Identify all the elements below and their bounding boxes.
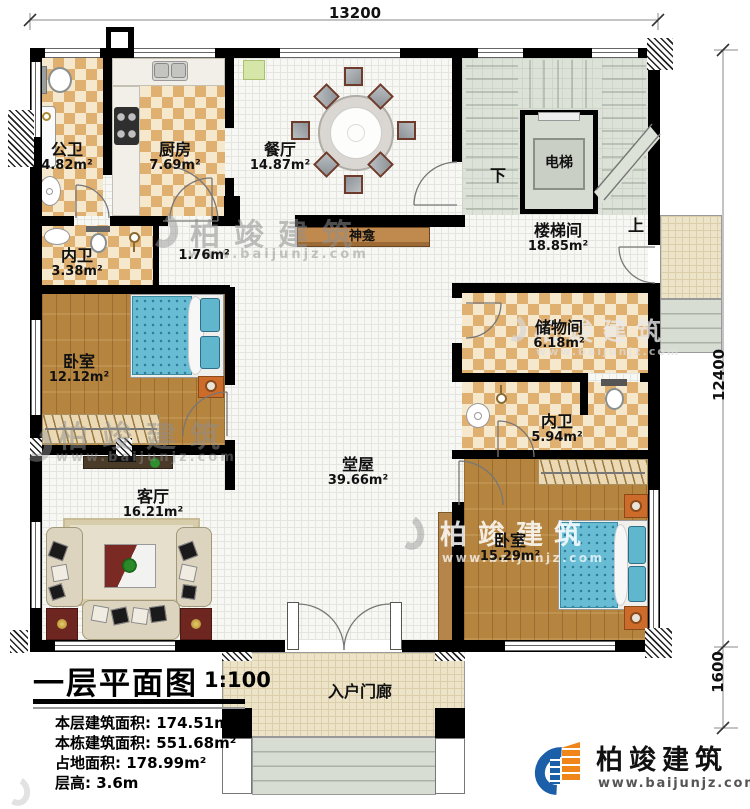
nightstand-2a-lamp xyxy=(630,500,642,512)
room-label-main-hall: 堂屋 39.66m² xyxy=(318,456,398,488)
stair-up-label: 上 xyxy=(628,212,644,236)
end-table-right-medallion xyxy=(191,619,201,629)
room-label-inner-bath-2: 内卫 5.94m² xyxy=(517,413,597,445)
toilet-bowl xyxy=(48,67,72,93)
watermark-swirl-5 xyxy=(1,773,34,809)
hatch-bottom-right xyxy=(645,628,672,658)
stat-value: 174.51m² xyxy=(156,714,236,732)
brand-logo: 柏竣建筑 www.baijunjz.com xyxy=(536,738,741,802)
window-right-bedroom xyxy=(649,490,659,630)
window-bottom-living xyxy=(55,641,175,651)
hatch-top-right xyxy=(647,38,673,70)
room-label-entry-porch: 入户门廊 xyxy=(300,683,420,701)
wall-toilet-partition xyxy=(580,373,588,415)
window-left-living xyxy=(31,522,41,608)
chimney-flue xyxy=(111,32,128,48)
stat-label: 占地面积: xyxy=(55,754,121,772)
bath1-sink xyxy=(44,228,70,245)
room-label-storage: 储物间 6.18m² xyxy=(519,319,599,351)
entry-door-leaf-left xyxy=(287,602,299,650)
room-label-shrine-area: 1.76m² xyxy=(169,249,239,264)
wall-bedroom1-east-a xyxy=(225,287,235,385)
bed2-pillow-1 xyxy=(628,526,646,564)
room-label-bedroom-1: 卧室 12.12m² xyxy=(39,353,119,385)
bathtub-knob xyxy=(42,112,51,121)
porch-column-base-right xyxy=(435,738,465,794)
closet-2 xyxy=(538,459,648,485)
window-top-dining xyxy=(280,48,400,58)
stat-footprint-area: 占地面积: 178.99m² xyxy=(55,752,206,773)
room-label-bedroom-2: 卧室 15.29m² xyxy=(470,532,550,564)
pillow-b2 xyxy=(111,607,130,626)
pillow-b3 xyxy=(131,607,149,625)
dining-chair-n xyxy=(344,67,363,86)
stat-label: 本层建筑面积: xyxy=(55,714,151,732)
pillow-b1 xyxy=(91,605,110,624)
window-top-stair-2 xyxy=(592,48,638,58)
stat-label: 层高: xyxy=(55,774,91,792)
stat-label: 本栋建筑面积: xyxy=(55,734,151,752)
stat-storey-height: 层高: 3.6m xyxy=(55,772,138,793)
wall-right-upper xyxy=(648,48,660,245)
window-top-kitchen xyxy=(134,48,215,58)
wall-bottom-mid xyxy=(402,640,458,652)
stat-value: 3.6m xyxy=(96,774,138,792)
wall-bath2-bedroom2 xyxy=(452,450,660,459)
room-label-elevator: 电梯 xyxy=(522,156,596,172)
stat-value: 551.68m² xyxy=(156,734,236,752)
wall-toprooms-a xyxy=(30,216,74,226)
dimension-side: 12400 xyxy=(710,345,726,405)
wall-kitchen-dining-a xyxy=(225,58,234,128)
wall-storage-south xyxy=(452,373,587,382)
title-underline-thin xyxy=(33,707,245,709)
bed2-pillow-2 xyxy=(628,566,646,602)
brand-logo-tower-blue-icon xyxy=(550,754,560,784)
hatch-porch-right xyxy=(435,652,465,661)
room-label-shrine: 神龛 xyxy=(332,230,392,245)
dining-chair-w xyxy=(291,121,310,140)
dimension-porch: 1600 xyxy=(709,642,725,702)
bath2-lamp xyxy=(496,393,507,404)
room-label-kitchen: 厨房 7.69m² xyxy=(135,141,215,173)
bath1-shower-head xyxy=(129,232,140,243)
bath-sink-drain xyxy=(46,188,53,195)
title-underline xyxy=(33,699,245,704)
nightstand-2b-lamp xyxy=(630,612,642,624)
bed2-blanket xyxy=(614,524,628,606)
floor-plan: 13200 12400 1600 公卫 4.82m² 厨房 7.69m² 餐厅 … xyxy=(0,0,750,809)
plan-title: 一层平面图 xyxy=(33,658,198,703)
kitchen-sink-basin-2 xyxy=(171,63,186,78)
wall-storage-west-b xyxy=(452,343,462,375)
wall-dining-stair xyxy=(452,58,462,162)
dining-plant-box xyxy=(243,60,265,80)
end-table-left-medallion xyxy=(57,619,67,629)
bath1-shower-stem xyxy=(133,243,135,252)
watermark-url-2: www.baijunjz.com xyxy=(56,450,237,465)
pillow-b4 xyxy=(149,605,167,623)
bath2-sink-drain xyxy=(474,412,482,420)
closet-rod-2 xyxy=(541,472,645,474)
pillow-r2 xyxy=(179,564,198,583)
stat-building-area: 本栋建筑面积: 551.68m² xyxy=(55,732,236,753)
brand-name: 柏竣建筑 xyxy=(596,738,728,777)
entry-steps xyxy=(252,737,436,795)
stat-floor-area: 本层建筑面积: 174.51m² xyxy=(55,712,236,733)
brand-logo-tower-orange-icon xyxy=(562,742,580,782)
porch-column-right xyxy=(435,708,465,738)
room-label-public-bath: 公卫 4.82m² xyxy=(27,141,107,173)
dining-chair-e xyxy=(397,121,416,140)
wall-storage-north xyxy=(452,283,660,293)
bed1-mattress xyxy=(132,296,192,375)
room-label-stairwell: 楼梯间 18.85m² xyxy=(518,222,598,254)
pillow-r3 xyxy=(181,584,197,600)
room-label-living: 客厅 16.21m² xyxy=(113,488,193,520)
stove xyxy=(114,107,139,145)
side-porch-floor xyxy=(660,215,722,299)
kitchen-sink-basin-1 xyxy=(154,63,169,78)
room-label-inner-bath-1: 内卫 3.38m² xyxy=(37,247,117,279)
stat-value: 178.99m² xyxy=(126,754,206,772)
bed1-pillow-1 xyxy=(200,298,220,332)
brand-website: www.baijunjz.com xyxy=(598,776,750,791)
bath2-toilet-tank xyxy=(601,379,627,386)
wall-storage-west-a xyxy=(452,283,462,298)
table-plant xyxy=(121,557,138,574)
bed1-pillow-2 xyxy=(200,336,220,369)
wall-storage-south-e xyxy=(640,373,660,382)
room-label-dining: 餐厅 14.87m² xyxy=(240,141,320,173)
hatch-bottom-left xyxy=(10,630,28,653)
window-top-stair-1 xyxy=(478,48,523,58)
bath2-lamp-cord xyxy=(500,385,502,393)
plan-scale: 1:100 xyxy=(204,668,271,692)
dimension-top: 13200 xyxy=(320,4,390,22)
dining-chair-s xyxy=(344,175,363,194)
hatch-porch-left xyxy=(222,652,252,661)
wall-bedroom1-north xyxy=(30,285,230,294)
dining-table-hub xyxy=(347,124,365,142)
bath2-toilet-bowl xyxy=(605,388,624,410)
nightstand-1-lamp xyxy=(205,380,217,392)
stair-down-label: 下 xyxy=(490,162,506,186)
elevator-door-slit xyxy=(538,112,580,121)
bath1-toilet-tank xyxy=(86,226,110,232)
entry-door-leaf-right xyxy=(390,602,402,650)
pillow-l2 xyxy=(51,564,70,583)
window-top-1 xyxy=(45,48,100,58)
window-bottom-bedroom xyxy=(505,641,615,651)
